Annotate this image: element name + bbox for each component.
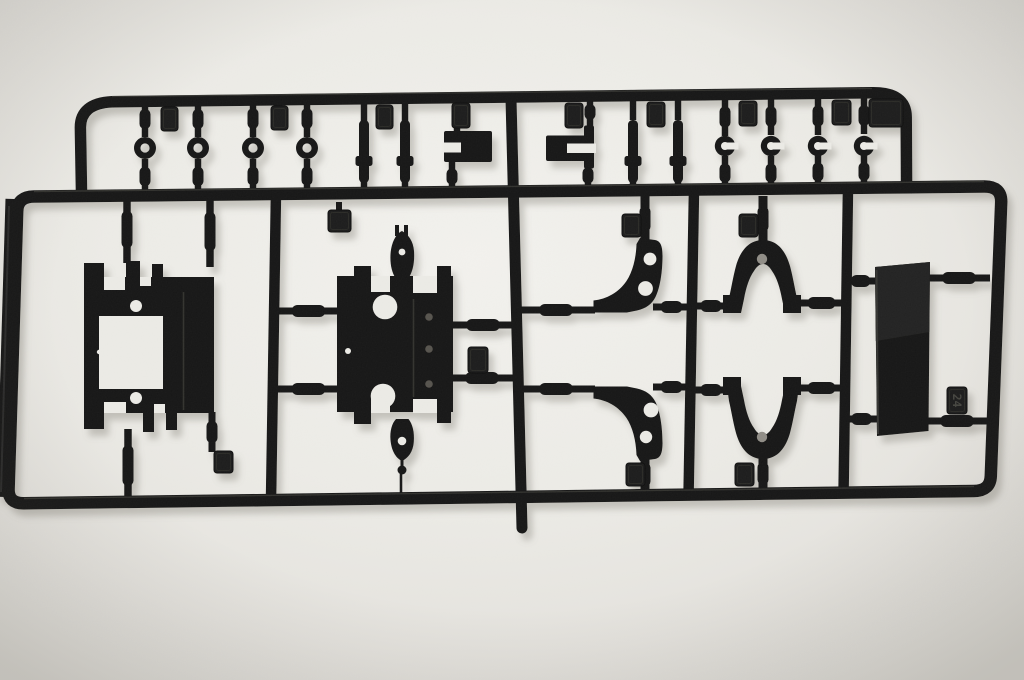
photo-sprue-scene: 24 [0, 0, 1024, 680]
film-grain-overlay [0, 0, 1024, 680]
sprue-photo: 24 [0, 0, 1024, 680]
